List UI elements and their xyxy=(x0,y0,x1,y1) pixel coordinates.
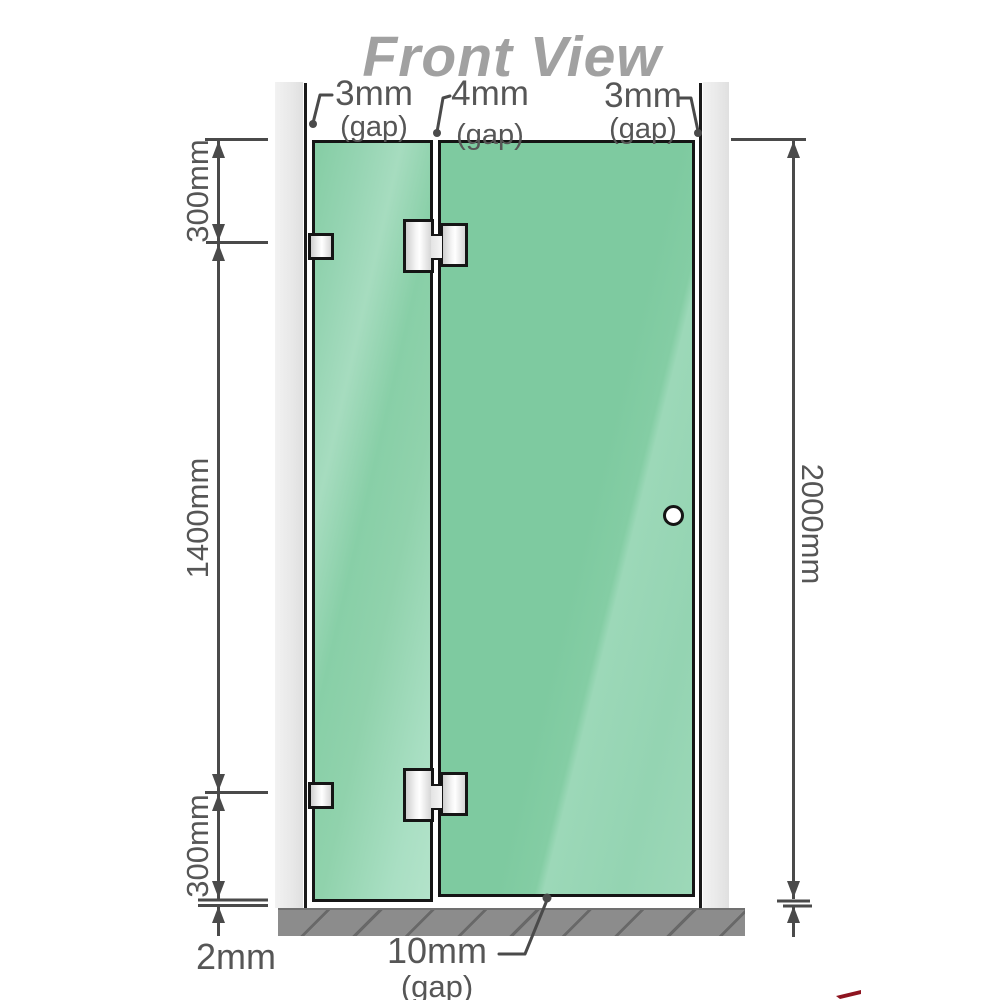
dim-arrow-up xyxy=(787,906,800,923)
leader-gap-bottom xyxy=(499,900,547,954)
dim-label-left-top: 300mm xyxy=(180,106,216,276)
diagram-canvas: Front View xyxy=(0,0,1000,1000)
corner-logo-fragment xyxy=(836,990,861,999)
gap-label-top-left: 3mm (gap) xyxy=(328,76,420,142)
dim-arrow-down xyxy=(787,881,800,898)
gap-value: 3mm xyxy=(597,78,689,113)
gap-value: 10mm xyxy=(375,933,499,969)
dim-label-left-middle: 1400mm xyxy=(180,433,216,603)
gap-unit: (gap) xyxy=(375,971,499,1000)
gap-unit: (gap) xyxy=(328,113,420,142)
leader-dot xyxy=(694,129,702,137)
gap-unit: (gap) xyxy=(444,121,536,150)
gap-value: 4mm xyxy=(444,76,536,111)
leader-dot xyxy=(433,129,441,137)
dim-label-left-bottom: 300mm xyxy=(180,761,216,931)
dim-arrow-up xyxy=(787,141,800,158)
dim-label-floor-clearance: 2mm xyxy=(190,936,282,978)
leader-dot xyxy=(309,120,317,128)
dim-label-right-full: 2000mm xyxy=(794,439,830,609)
leader-dot xyxy=(543,894,552,903)
gap-label-top-right: 3mm (gap) xyxy=(597,78,689,144)
gap-label-top-middle: 4mm (gap) xyxy=(444,76,536,150)
gap-unit: (gap) xyxy=(597,115,689,144)
gap-value: 3mm xyxy=(328,76,420,111)
gap-label-bottom: 10mm (gap) xyxy=(375,933,499,1000)
